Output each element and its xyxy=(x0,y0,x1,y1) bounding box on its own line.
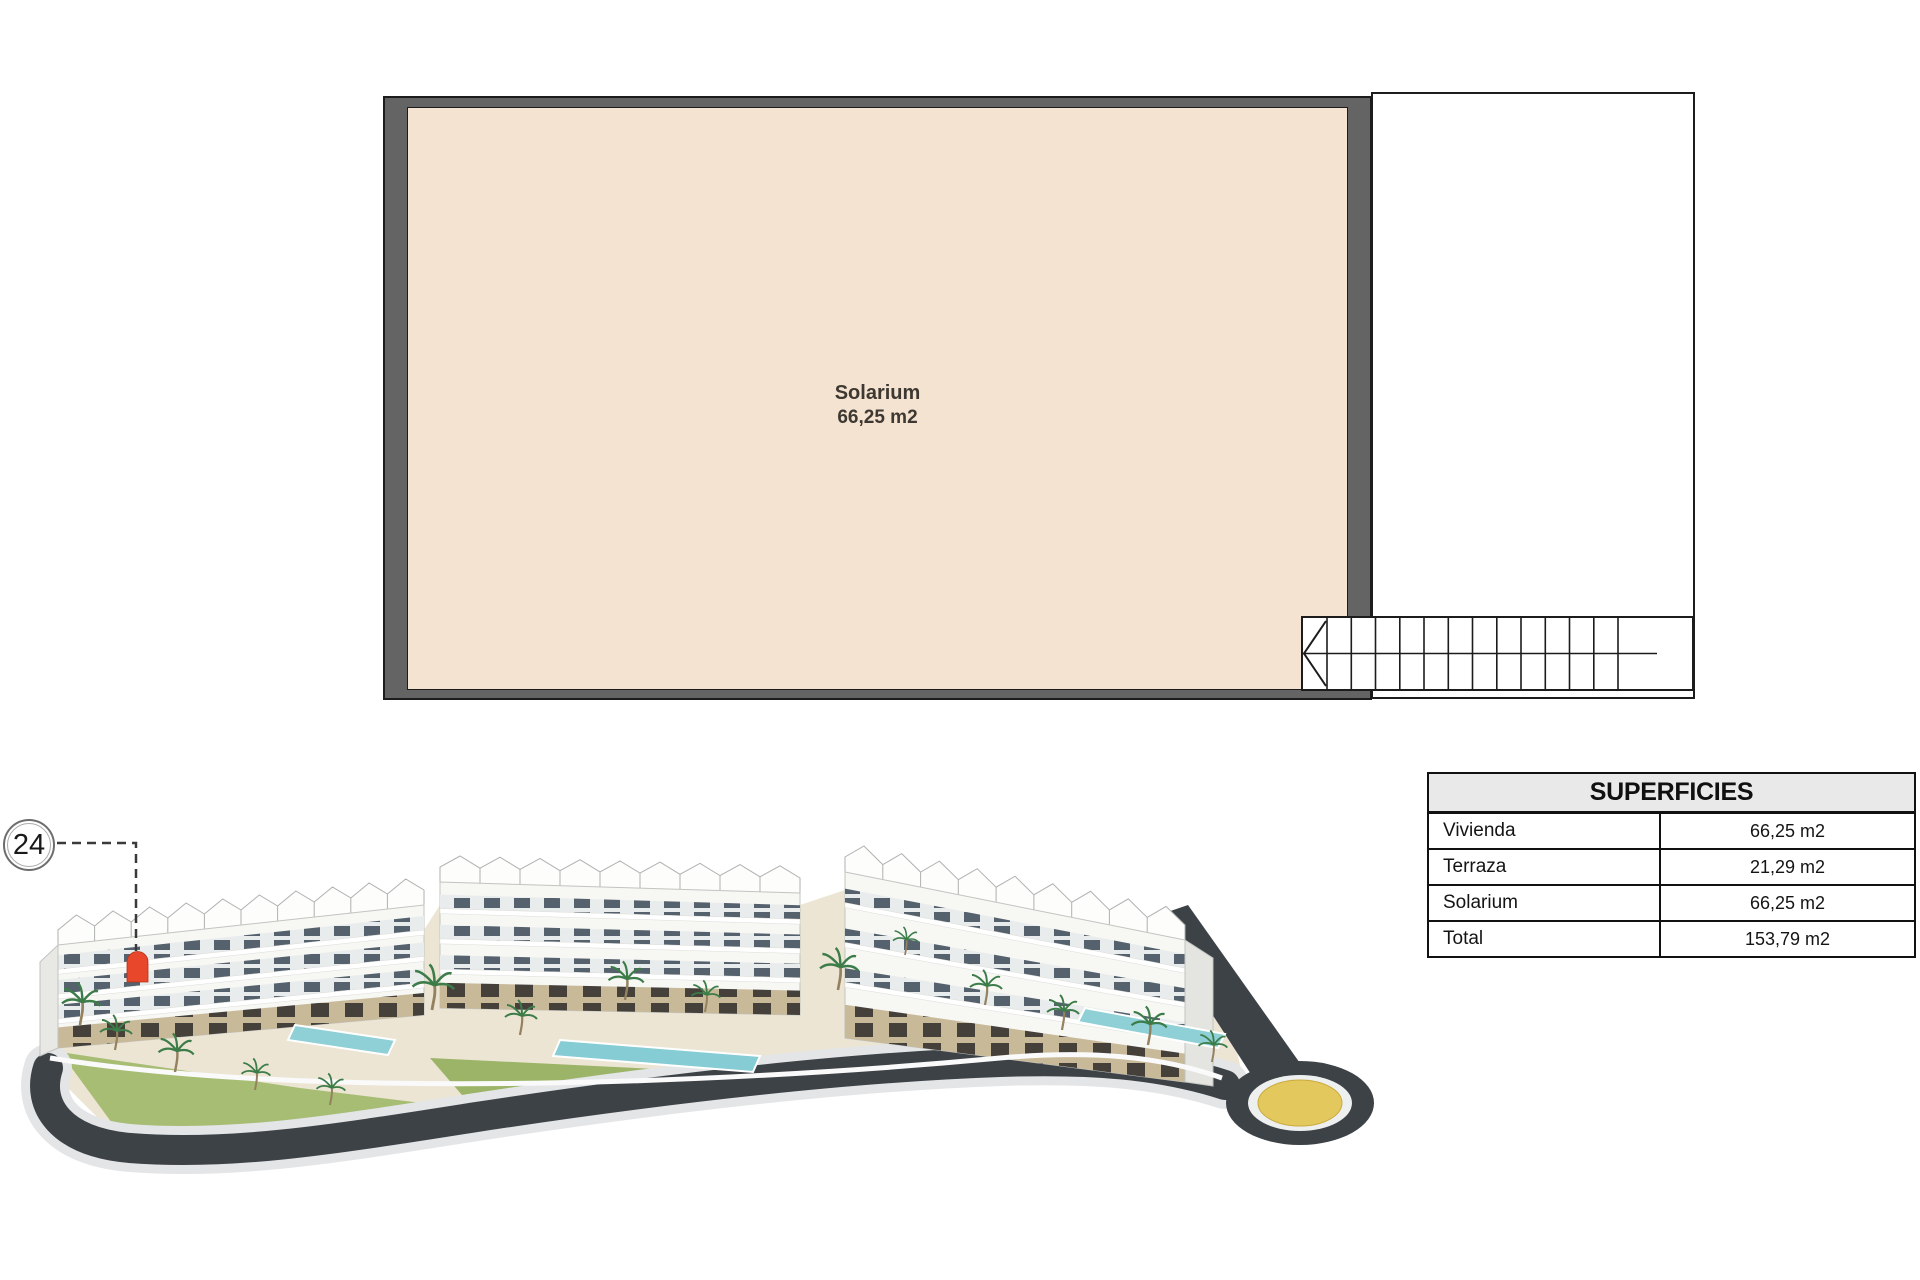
building-end-wall xyxy=(40,945,58,1056)
table-row-label: Total xyxy=(1429,922,1661,956)
unit-callout-badge: 24 xyxy=(3,819,55,871)
superficies-table: SUPERFICIES Vivienda66,25 m2Terraza21,29… xyxy=(1427,772,1916,958)
table-row-label: Solarium xyxy=(1429,886,1661,920)
roundabout xyxy=(1226,1061,1374,1145)
callout-number: 24 xyxy=(13,829,45,862)
table-row-value: 66,25 m2 xyxy=(1661,886,1914,920)
table-row: Solarium66,25 m2 xyxy=(1429,886,1914,922)
building-block-middle xyxy=(440,856,800,1015)
table-body: Vivienda66,25 m2Terraza21,29 m2Solarium6… xyxy=(1429,814,1914,956)
floor-plan-wall: Solarium 66,25 m2 xyxy=(383,96,1372,700)
table-row: Terraza21,29 m2 xyxy=(1429,850,1914,886)
table-title: SUPERFICIES xyxy=(1429,774,1914,814)
table-row-label: Vivienda xyxy=(1429,814,1661,848)
room-area: 66,25 m2 xyxy=(837,406,917,430)
table-row-value: 66,25 m2 xyxy=(1661,814,1914,848)
table-row: Total153,79 m2 xyxy=(1429,922,1914,956)
page-root: { "plan": { "room_label": "Solarium", "r… xyxy=(0,0,1920,1280)
table-row-value: 153,79 m2 xyxy=(1661,922,1914,956)
table-row-value: 21,29 m2 xyxy=(1661,850,1914,884)
table-row: Vivienda66,25 m2 xyxy=(1429,814,1914,850)
room-label: Solarium xyxy=(835,381,921,406)
unit-marker xyxy=(127,952,148,983)
staircase-drawing xyxy=(1295,608,1699,700)
solarium-floor: Solarium 66,25 m2 xyxy=(407,107,1348,690)
building-end-wall xyxy=(1185,940,1213,1086)
table-row-label: Terraza xyxy=(1429,850,1661,884)
complex-render-illustration xyxy=(0,810,1380,1190)
